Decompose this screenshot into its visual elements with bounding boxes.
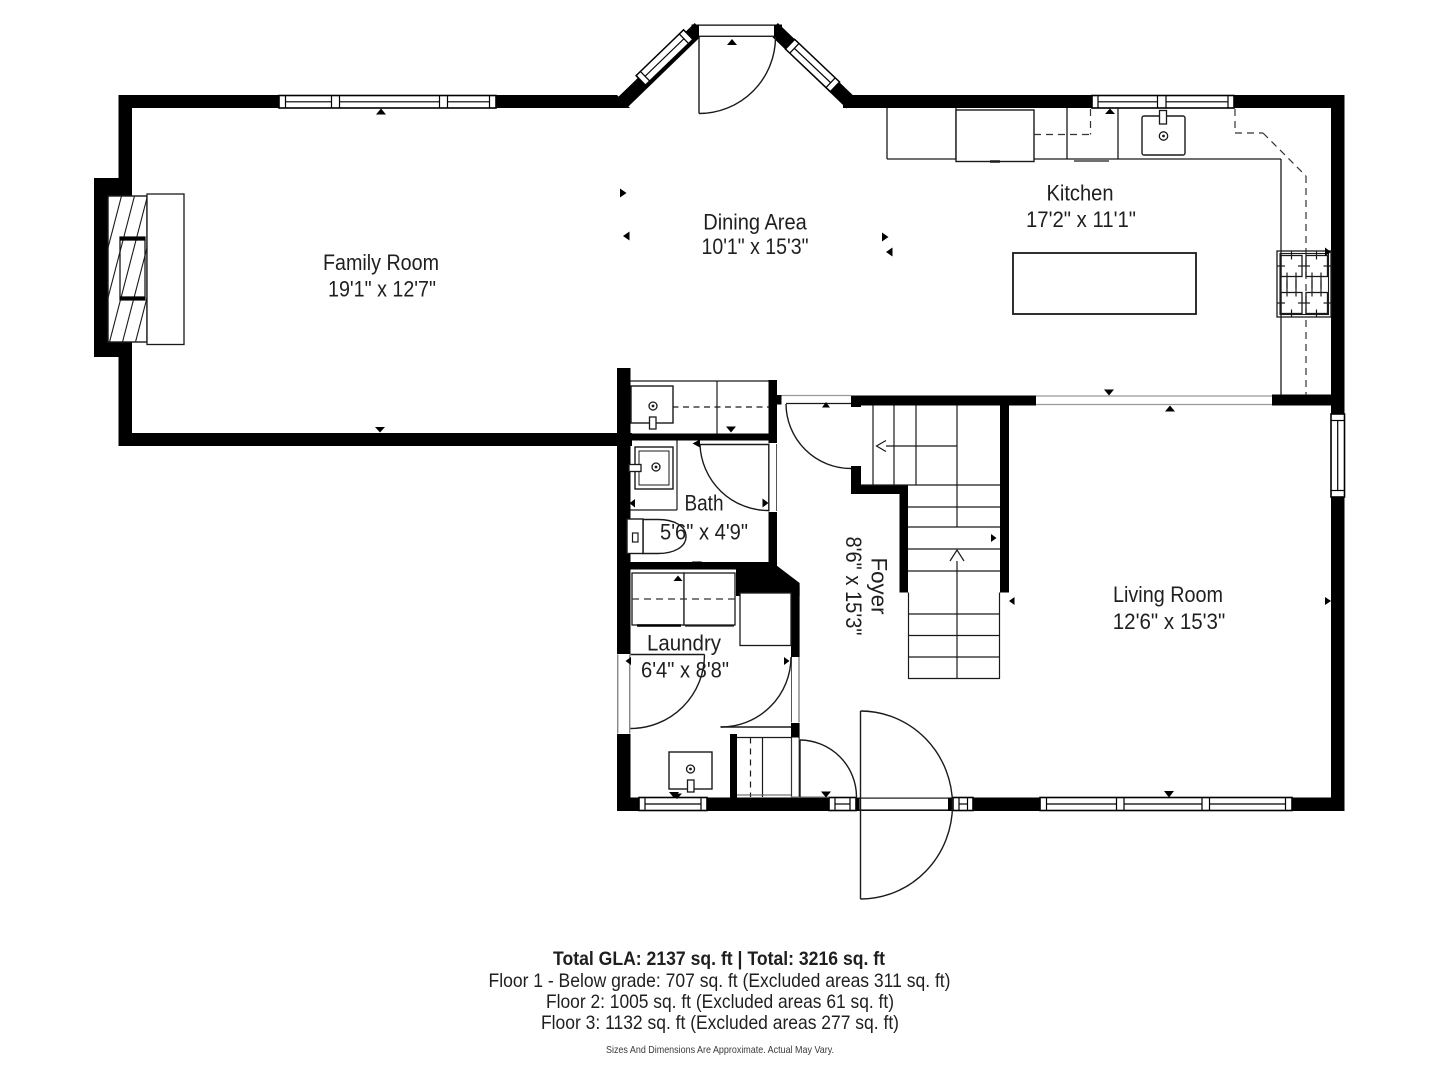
svg-text:Family Room: Family Room [323, 250, 439, 275]
svg-text:5'6" x 4'9": 5'6" x 4'9" [660, 520, 748, 545]
svg-text:Living Room: Living Room [1113, 582, 1223, 607]
svg-text:Floor 3: 1132 sq. ft (Excluded: Floor 3: 1132 sq. ft (Excluded areas 277… [541, 1012, 899, 1034]
svg-text:Dining Area: Dining Area [703, 210, 807, 235]
svg-text:Bath: Bath [685, 491, 724, 516]
svg-text:Foyer: Foyer [867, 558, 892, 616]
svg-text:Kitchen: Kitchen [1047, 181, 1114, 206]
svg-text:10'1" x 15'3": 10'1" x 15'3" [702, 234, 809, 259]
svg-text:17'2" x 11'1": 17'2" x 11'1" [1026, 207, 1136, 232]
svg-text:Total GLA: 2137 sq. ft | Total: Total GLA: 2137 sq. ft | Total: 3216 sq.… [553, 948, 885, 970]
svg-text:8'6" x 15'3": 8'6" x 15'3" [841, 537, 866, 636]
svg-text:6'4" x 8'8": 6'4" x 8'8" [641, 658, 729, 683]
svg-text:Sizes And Dimensions Are Appro: Sizes And Dimensions Are Approximate. Ac… [606, 1044, 834, 1056]
svg-text:Floor 1 - Below grade: 707 sq.: Floor 1 - Below grade: 707 sq. ft (Exclu… [489, 970, 951, 992]
svg-text:19'1" x 12'7": 19'1" x 12'7" [328, 277, 436, 302]
svg-text:Floor 2: 1005 sq. ft (Excluded: Floor 2: 1005 sq. ft (Excluded areas 61 … [546, 991, 894, 1013]
svg-text:Laundry: Laundry [647, 631, 722, 656]
svg-text:12'6" x 15'3": 12'6" x 15'3" [1113, 609, 1226, 634]
